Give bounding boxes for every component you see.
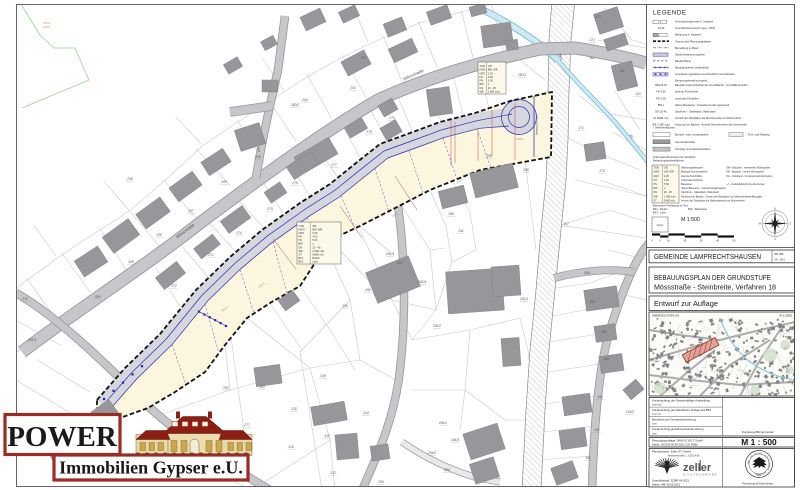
svg-text:291: 291 (457, 229, 464, 233)
svg-text:GB: GB (312, 224, 316, 228)
svg-text:ÜBERSICHTSPLAN: ÜBERSICHTSPLAN (652, 314, 679, 318)
svg-text:Grenze des Planungsgebietes: Grenze des Planungsgebietes (675, 39, 712, 43)
svg-text:292/1: 292/1 (519, 297, 528, 301)
svg-text:265: 265 (254, 155, 261, 159)
svg-text:865: 865 (589, 56, 595, 61)
svg-text:5,50: 5,50 (664, 183, 669, 186)
svg-text:Grundstücksgrenzen lt. Kataste: Grundstücksgrenzen lt. Kataster (675, 20, 713, 24)
svg-text:BF3 - Baukörper: BF3 - Baukörper (688, 207, 707, 211)
svg-text:DN: DN (480, 86, 484, 90)
svg-text:DN: DN (654, 191, 658, 194)
svg-text:153/2: 153/2 (626, 410, 634, 414)
svg-text:--/\-- Geländeböschung oben/un: --/\-- Geländeböschung oben/unten (726, 183, 766, 186)
svg-text:Straßenbegrenzungslinie: Straßenbegrenzungslinie (675, 52, 705, 56)
svg-text:0,25: 0,25 (664, 175, 669, 178)
svg-text:264: 264 (301, 98, 308, 102)
svg-text:263: 263 (349, 86, 356, 90)
svg-text:Mattseestraße 1, 5201 A/df: Mattseestraße 1, 5201 A/df (668, 454, 699, 458)
svg-text:vom bis: vom bis (652, 403, 662, 407)
svg-text:277: 277 (330, 163, 337, 167)
svg-text:167: 167 (563, 222, 569, 226)
svg-text:5/WE min: 5/WE min (664, 199, 675, 202)
svg-text:Planungsgrundlage: DKM 5.0 (R: Planungsgrundlage: DKM 5.0 (R LT GmbH (652, 439, 703, 443)
svg-text:Besondere Festlegung im Text:: Besondere Festlegung im Text: (653, 204, 689, 208)
svg-text:BW: BW (299, 242, 304, 246)
svg-text:173: 173 (595, 15, 601, 19)
svg-text:GEMEINDE LAMPRECHTSHAUSEN: GEMEINDE LAMPRECHTSHAUSEN (654, 252, 761, 261)
svg-text:Bebaute Ausnutzbarkeit: Bebaute Ausnutzbarkeit (681, 171, 708, 174)
svg-text:288: 288 (522, 168, 529, 172)
svg-text:142: 142 (619, 69, 625, 73)
svg-text:5/WE min: 5/WE min (312, 252, 324, 256)
svg-text:5,50: 5,50 (488, 79, 494, 83)
svg-text:HWG: HWG (299, 228, 305, 232)
svg-text:2 WE max: 2 WE max (488, 89, 501, 93)
svg-text:4,50: 4,50 (312, 235, 318, 239)
svg-text:FH: FH (299, 235, 303, 239)
svg-text:868: 868 (584, 271, 590, 275)
svg-text:283: 283 (258, 385, 265, 389)
svg-text:Nutzung von Bauten - Anzahl Wo: Nutzung von Bauten - Anzahl Wohneinheite… (675, 122, 747, 126)
svg-text:280/2: 280/2 (290, 103, 299, 107)
svg-text:BW: BW (654, 187, 659, 190)
svg-text:BEBAUUNGSPLAN DER GRUNDSTUFE: BEBAUUNGSPLAN DER GRUNDSTUFE (654, 273, 771, 282)
svg-text:Bemaßung in Meter: Bemaßung in Meter (675, 46, 699, 50)
svg-text:267: 267 (187, 209, 194, 213)
svg-text:* Verkehrsflächen:: * Verkehrsflächen: (653, 126, 676, 130)
svg-text:vom bis: vom bis (652, 412, 662, 416)
svg-text:OG - Grünland - Immissionsschu: OG - Grünland - Immissionsschutzstreifen (726, 175, 773, 178)
svg-text:ST: ST (299, 252, 303, 256)
svg-text:292/3: 292/3 (385, 252, 394, 256)
svg-text:680/16,20: 680/16,20 (655, 83, 667, 87)
svg-text:zeller: zeller (683, 462, 712, 474)
svg-text:Kundmachung gemäß Gemeindeordn: Kundmachung gemäß Gemeindeordnung (652, 427, 704, 431)
svg-text:TGB: TGB (299, 224, 305, 228)
svg-text:FH: FH (480, 75, 484, 79)
svg-text:281/3: 281/3 (27, 338, 36, 342)
svg-text:164: 164 (603, 357, 609, 361)
svg-text:4,50: 4,50 (664, 179, 669, 182)
svg-text:offene Bauweise - freistehend: offene Bauweise - freistehend oder gekup… (675, 103, 729, 107)
svg-text:318: 318 (291, 407, 297, 411)
svg-text:Planverfasser: Zeller ZT GmbH: Planverfasser: Zeller ZT GmbH (652, 450, 691, 454)
svg-text:Geschäftszahl: 3238P-04-2021: Geschäftszahl: 3238P-04-2021 (652, 479, 690, 483)
svg-text:285: 285 (341, 304, 348, 308)
svg-text:N: N (774, 208, 776, 211)
svg-text:Immobilien Gypser e.U.: Immobilien Gypser e.U. (59, 458, 243, 478)
svg-text:Anzahl der Stellplätze als Min: Anzahl der Stellplätze als Mindestanzahl… (681, 199, 745, 202)
svg-text:171: 171 (578, 126, 584, 130)
svg-text:PN 5,50: PN 5,50 (656, 96, 666, 100)
svg-text:FH: FH (654, 179, 658, 182)
svg-text:BW, WR: BW, WR (312, 228, 322, 232)
svg-text:oberste Fluchthöhe: oberste Fluchthöhe (681, 175, 703, 178)
svg-text:166: 166 (589, 300, 595, 304)
svg-text:282: 282 (222, 386, 229, 390)
svg-text:294/1: 294/1 (438, 421, 447, 425)
svg-text:Kundmachung der Gesetzmäßigen: Kundmachung der Gesetzmäßigen Aufstellun… (652, 398, 710, 402)
svg-text:286: 286 (364, 288, 371, 292)
svg-text:274: 274 (235, 231, 242, 235)
svg-text:GB: GB (488, 64, 492, 68)
svg-text:163: 163 (597, 395, 603, 399)
svg-text:Bauplatzgrenze (verbindlich): Bauplatzgrenze (verbindlich) (675, 65, 709, 69)
svg-text:0,25: 0,25 (488, 71, 494, 75)
svg-text:Rundsiegel/Bürgermeister: Rundsiegel/Bürgermeister (742, 430, 774, 434)
svg-text:Bauplatz Ausnutzbarkeit der Gr: Bauplatz Ausnutzbarkeit der Grundfläche … (675, 83, 748, 87)
svg-text:M 1:500: M 1:500 (681, 217, 700, 223)
svg-text:165: 165 (601, 330, 607, 334)
svg-text:4,50: 4,50 (488, 75, 494, 79)
svg-text:269: 269 (127, 260, 134, 264)
svg-text:WE: WE (480, 89, 484, 93)
svg-text:20 - 45: 20 - 45 (488, 86, 497, 90)
svg-text:246: 246 (126, 177, 133, 181)
svg-text:HWG: HWG (480, 68, 486, 72)
svg-text:289: 289 (447, 212, 454, 216)
svg-text:St 5/WE min: St 5/WE min (654, 116, 669, 120)
svg-text:2 WE max: 2 WE max (312, 249, 325, 253)
svg-text:292/2: 292/2 (432, 324, 441, 328)
svg-text:262: 262 (360, 56, 367, 60)
svg-text:Fuß- und Radweg: Fuß- und Radweg (748, 133, 770, 137)
svg-text:278: 278 (365, 130, 372, 134)
svg-text:20 - 45: 20 - 45 (312, 245, 321, 249)
svg-text:271: 271 (207, 253, 214, 257)
svg-text:266: 266 (220, 180, 227, 184)
svg-text:162: 162 (594, 428, 600, 432)
svg-text:Nutzungen/Kennwerte für sämtli: Nutzungen/Kennwerte für sämtliche (653, 155, 696, 159)
svg-text:Anzahl der Stellplätze als Min: Anzahl der Stellplätze als Mindestmaß pr… (675, 116, 741, 120)
svg-text:277: 277 (243, 423, 250, 427)
svg-text:PN: PN (480, 79, 484, 83)
svg-text:5,50: 5,50 (312, 238, 318, 242)
svg-text:ZIVILTECHNIKER: ZIVILTECHNIKER (683, 473, 717, 477)
svg-text:Geordnete (geplante) unverbind: Geordnete (geplante) unverbindliche Grun… (675, 72, 735, 76)
svg-text:292/4: 292/4 (417, 280, 426, 284)
svg-text:GB: GB (664, 167, 668, 170)
svg-text:2 WE max: 2 WE max (664, 195, 676, 198)
svg-text:884: 884 (444, 468, 450, 472)
svg-text:BF2: BF2 (299, 259, 304, 263)
svg-text:DN 20-45: DN 20-45 (655, 109, 667, 113)
svg-text:Auf- und Radweg: Auf- und Radweg (535, 114, 539, 136)
svg-text:280/1: 280/1 (517, 137, 524, 141)
svg-text:Grundstücksnummern gem. DKM: Grundstücksnummern gem. DKM (675, 26, 716, 30)
svg-text:FH 4,50: FH 4,50 (656, 90, 666, 94)
svg-text:313: 313 (324, 434, 330, 438)
svg-text:Baufluchtlinie: Baufluchtlinie (675, 59, 691, 63)
svg-text:M 1 : 500: M 1 : 500 (741, 437, 777, 447)
svg-text:287: 287 (396, 261, 403, 265)
svg-text:Stand: 10/2019 05.08.2021 (C: Stand: 10/2019 05.08.2021 (CD 6668) (652, 443, 698, 447)
svg-text:POWER: POWER (7, 421, 118, 453)
svg-text:GB - Bauland - reines Wohngebi: GB - Bauland - reines Wohngebiet (726, 171, 764, 174)
svg-text:PN: PN (299, 238, 303, 242)
svg-text:vom: vom (652, 432, 657, 435)
svg-text:Entwurf zur Auflage: Entwurf zur Auflage (654, 299, 718, 308)
svg-text:BW o: BW o (658, 103, 665, 107)
svg-text:172: 172 (589, 38, 595, 42)
svg-text:12/16: 12/16 (658, 26, 665, 30)
svg-text:Nutzung von Bauten - Anzahl de: Nutzung von Bauten - Anzahl der Bauplätz… (681, 195, 763, 198)
svg-text:Boden: Boden (312, 256, 320, 260)
svg-text:294/3: 294/3 (450, 438, 459, 442)
svg-text:314: 314 (363, 411, 369, 415)
svg-text:Bauweise: Bauweise (681, 183, 692, 186)
svg-text:275: 275 (266, 207, 273, 211)
svg-text:Beschluss der Gemeindevertretu: Beschluss der Gemeindevertretung (652, 418, 696, 422)
svg-text:280/1: 280/1 (517, 73, 526, 77)
svg-text:04 - 2021: 04 - 2021 (775, 258, 786, 261)
svg-text:WE: WE (654, 195, 658, 198)
svg-text:WE: WE (299, 249, 303, 253)
svg-text:Bundes- oder Landesstraße: Bundes- oder Landesstraße (675, 133, 709, 137)
svg-text:BW, WR: BW, WR (488, 68, 498, 72)
svg-text:GW, WR: GW, WR (664, 171, 674, 174)
svg-text:Widmungskategorie: Widmungskategorie (681, 167, 704, 170)
svg-text:BF1 - Boden: BF1 - Boden (653, 207, 668, 211)
svg-text:BB. BPL: BB. BPL (775, 253, 785, 256)
svg-text:Gemeindestraße: Gemeindestraße (675, 140, 696, 144)
svg-text:maximale Firsthöhe: maximale Firsthöhe (681, 179, 703, 182)
svg-text:BF1: BF1 (299, 256, 304, 260)
svg-text:ST: ST (654, 199, 658, 202)
svg-text:GRZ: GRZ (654, 175, 660, 178)
svg-text:GW - Bauland - erweitertes Woh: GW - Bauland - erweitertes Wohngebiet (726, 167, 770, 170)
svg-text:294/2: 294/2 (427, 451, 436, 455)
svg-text:310: 310 (288, 445, 294, 449)
svg-text:318: 318 (320, 374, 326, 378)
svg-text:maximale Firsthöhe: maximale Firsthöhe (675, 96, 699, 100)
svg-text:0,25: 0,25 (312, 231, 318, 235)
svg-text:Sonstige Grundstücksstraßen: Sonstige Grundstücksstraßen (675, 147, 711, 151)
svg-text:O: O (789, 223, 791, 226)
svg-text:HWG: HWG (654, 171, 660, 174)
svg-text:BF2 - Lärm: BF2 - Lärm (653, 210, 666, 214)
svg-text:280: 280 (377, 480, 384, 484)
svg-text:170: 170 (599, 169, 605, 173)
svg-text:279: 279 (388, 116, 395, 120)
svg-text:Bebauungsgebietsflächen:: Bebauungsgebietsflächen: (653, 159, 685, 163)
svg-text:Datum: 4M, 06.05.2021: Datum: 4M, 06.05.2021 (652, 483, 681, 487)
svg-text:GRZ: GRZ (299, 231, 305, 235)
svg-text:885: 885 (95, 295, 101, 299)
svg-text:PN: PN (654, 183, 658, 186)
svg-text:100gm: 100gm (656, 224, 663, 227)
svg-text:Kundmachung der öffentlichen A: Kundmachung der öffentlichen Auflage des… (652, 408, 712, 412)
svg-text:Mössstraße - Steinbreite, Verf: Mössstraße - Steinbreite, Verfahren 18 (654, 283, 776, 292)
svg-text:270: 270 (21, 297, 28, 301)
svg-text:oberste Fluchthöhe: oberste Fluchthöhe (675, 90, 699, 94)
svg-text:Dachform - Satteldach, Walmdac: Dachform - Satteldach, Walmdach (675, 109, 716, 113)
svg-text:TGB: TGB (480, 64, 486, 68)
svg-text:vom: vom (652, 423, 657, 426)
svg-text:276: 276 (291, 181, 298, 185)
svg-text:143: 143 (635, 92, 641, 96)
svg-text:GRZ: GRZ (480, 71, 486, 75)
svg-text:290: 290 (485, 154, 492, 158)
svg-text:Bebauung lt. Kataster: Bebauung lt. Kataster (675, 33, 701, 37)
svg-text:627/1: 627/1 (44, 25, 51, 29)
svg-text:offene Bauweise - freistehend/: offene Bauweise - freistehend/gekuppelt (681, 187, 726, 190)
svg-text:Bebauungsbestimmungen): Bebauungsbestimmungen) (675, 79, 707, 83)
svg-text:LEGENDE: LEGENDE (653, 10, 687, 17)
svg-text:312: 312 (330, 471, 336, 475)
svg-text:161: 161 (585, 456, 591, 460)
svg-text:Rundsiegel/Ziviltechniker: Rundsiegel/Ziviltechniker (742, 482, 773, 486)
svg-text:TGB: TGB (654, 167, 659, 170)
svg-text:268: 268 (155, 233, 162, 237)
svg-text:BW: BW (480, 82, 485, 86)
svg-text:Lärm: Lärm (312, 259, 318, 263)
svg-text:272: 272 (170, 284, 177, 288)
svg-text:Dachform - Satteldach, Walmdac: Dachform - Satteldach, Walmdach (681, 191, 720, 194)
svg-text:M 1:5000: M 1:5000 (779, 314, 792, 318)
svg-text:20 - 45: 20 - 45 (664, 191, 672, 194)
svg-text:DN: DN (299, 245, 303, 249)
